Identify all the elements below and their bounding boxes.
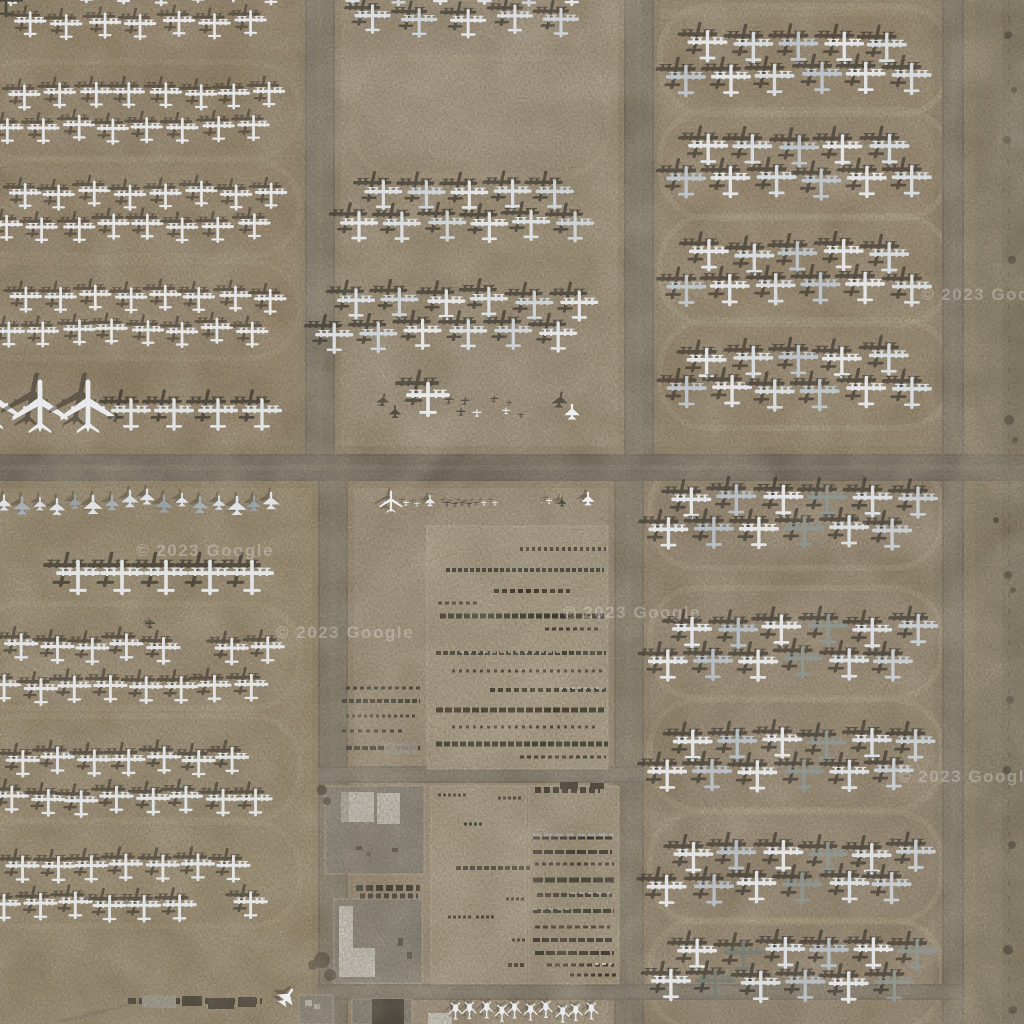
satellite-map-view: © 2023 Google© 2023 Google© 2023 Google©… xyxy=(0,0,1024,1024)
satellite-image: © 2023 Google© 2023 Google© 2023 Google©… xyxy=(0,0,1024,1024)
atmospheric-haze-overlay xyxy=(0,0,1024,1024)
